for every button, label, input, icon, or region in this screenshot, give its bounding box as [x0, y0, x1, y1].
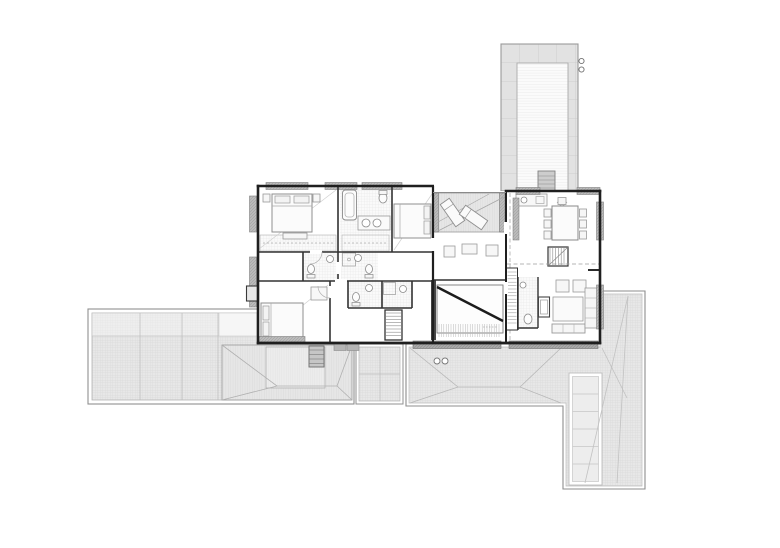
chair: [580, 209, 587, 217]
armchair: [573, 280, 586, 292]
chair: [580, 220, 587, 228]
toilet-tank: [365, 275, 373, 279]
armchair: [556, 280, 569, 292]
chimney: [247, 286, 258, 301]
patio-strip: [219, 313, 257, 336]
window-sill: [250, 196, 257, 232]
sink: [520, 282, 526, 288]
chair: [558, 198, 566, 205]
sink: [373, 219, 381, 227]
toilet-tank: [307, 275, 315, 279]
bench: [283, 233, 307, 239]
dining-table: [552, 206, 578, 240]
ottoman: [553, 297, 583, 321]
toilet: [308, 265, 315, 274]
chair: [544, 209, 551, 217]
sink: [327, 256, 334, 263]
exterior-step: [334, 344, 346, 351]
pool-detail-circle: [579, 67, 584, 72]
furniture: [486, 245, 498, 256]
wall-pier: [513, 198, 519, 240]
sink: [362, 219, 370, 227]
vent-pipe: [442, 358, 448, 364]
floor-plan: [0, 0, 780, 548]
sink: [521, 197, 527, 203]
pillow: [424, 206, 430, 219]
toilet-tank: [352, 303, 360, 307]
pillow: [275, 196, 290, 203]
pillow: [263, 322, 269, 336]
chair: [580, 231, 587, 239]
pillow: [263, 306, 269, 320]
door-opening: [335, 279, 347, 283]
nightstand: [313, 194, 320, 202]
furniture: [444, 246, 455, 257]
armchair: [311, 287, 327, 300]
vent-pipe: [434, 358, 440, 364]
sink: [355, 255, 362, 262]
toilet-tank: [379, 191, 387, 195]
door-opening: [504, 222, 508, 234]
door-opening: [431, 238, 435, 251]
pool-detail-circle: [579, 58, 584, 63]
terrace-stair: [309, 346, 324, 367]
chair: [544, 231, 551, 239]
door-opening: [328, 286, 332, 298]
nightstand: [263, 194, 270, 202]
toilet: [524, 314, 532, 324]
toilet: [366, 265, 373, 274]
pillow: [424, 221, 430, 234]
furniture: [462, 244, 477, 254]
chair: [544, 220, 551, 228]
pool-steps: [538, 171, 555, 192]
pillow: [294, 196, 309, 203]
sink: [366, 285, 373, 292]
page: [0, 0, 780, 548]
door-opening: [310, 250, 322, 254]
door-opening: [504, 282, 508, 294]
exterior-step: [347, 344, 359, 351]
door-opening: [336, 262, 340, 274]
sofa: [552, 324, 585, 333]
sink: [400, 286, 407, 293]
toilet: [353, 293, 360, 302]
